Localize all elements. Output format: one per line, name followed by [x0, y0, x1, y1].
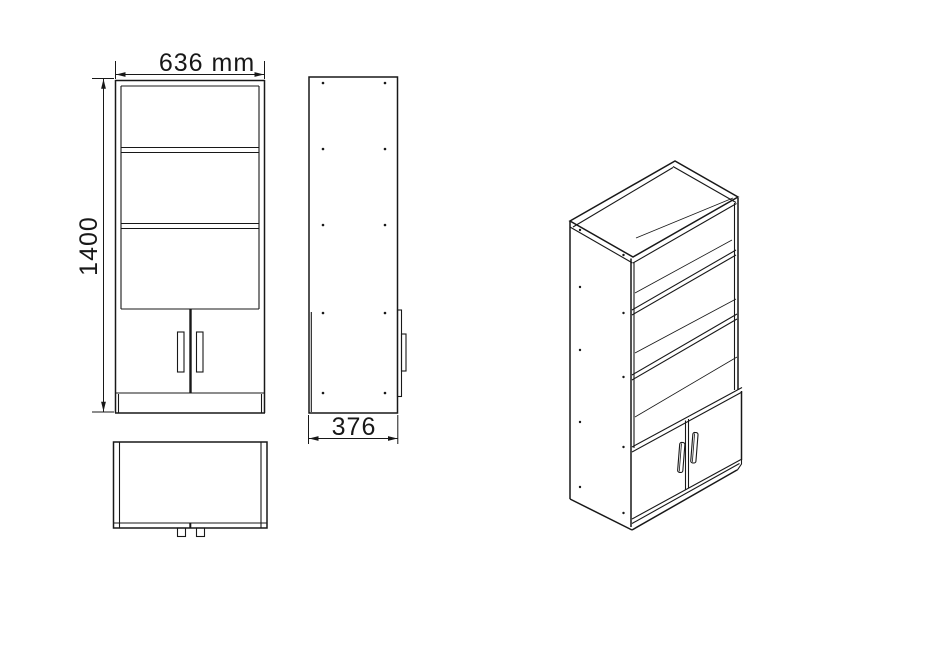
isometric-view: [570, 161, 742, 530]
arrow-up: [101, 79, 106, 89]
dimension-depth: 376: [309, 413, 398, 444]
right-handle-top: [197, 528, 205, 537]
iso-holes: [579, 229, 625, 514]
iso-right-door-handle: [691, 432, 699, 463]
side-door-handle: [402, 334, 407, 371]
arrow-right: [255, 72, 265, 77]
depth-dimension-label: 376: [332, 413, 377, 441]
arrow-left: [309, 436, 319, 441]
side-view-holes: [322, 82, 387, 395]
dimension-width: 636 mm: [116, 49, 265, 79]
iso-right-edge: [735, 198, 739, 390]
iso-left-door-handle: [677, 442, 685, 472]
door-gap: [189, 309, 191, 393]
door-gap-top: [189, 523, 191, 528]
left-handle-top: [178, 528, 186, 537]
front-shelf-lines: [121, 148, 259, 229]
iso-shelves: [632, 240, 737, 417]
arrow-left: [116, 72, 126, 77]
right-door-handle: [197, 332, 204, 372]
front-view: [115, 80, 265, 413]
side-view: [309, 77, 406, 413]
front-doors: [115, 309, 265, 393]
iso-top-panel: [570, 161, 738, 263]
arrow-right: [388, 436, 398, 441]
top-view: [114, 442, 268, 537]
dimension-height: 1400: [75, 79, 114, 413]
height-dimension-label: 1400: [75, 216, 103, 276]
iso-base: [632, 460, 742, 530]
iso-side-panel: [570, 221, 634, 530]
arrow-down: [101, 402, 106, 412]
width-dimension-label: 636 mm: [159, 49, 255, 77]
furniture-technical-drawing: 636 mm 1400 376: [0, 0, 951, 672]
technical-drawing-page: 636 mm 1400 376: [0, 0, 951, 672]
left-door-handle: [178, 332, 185, 372]
